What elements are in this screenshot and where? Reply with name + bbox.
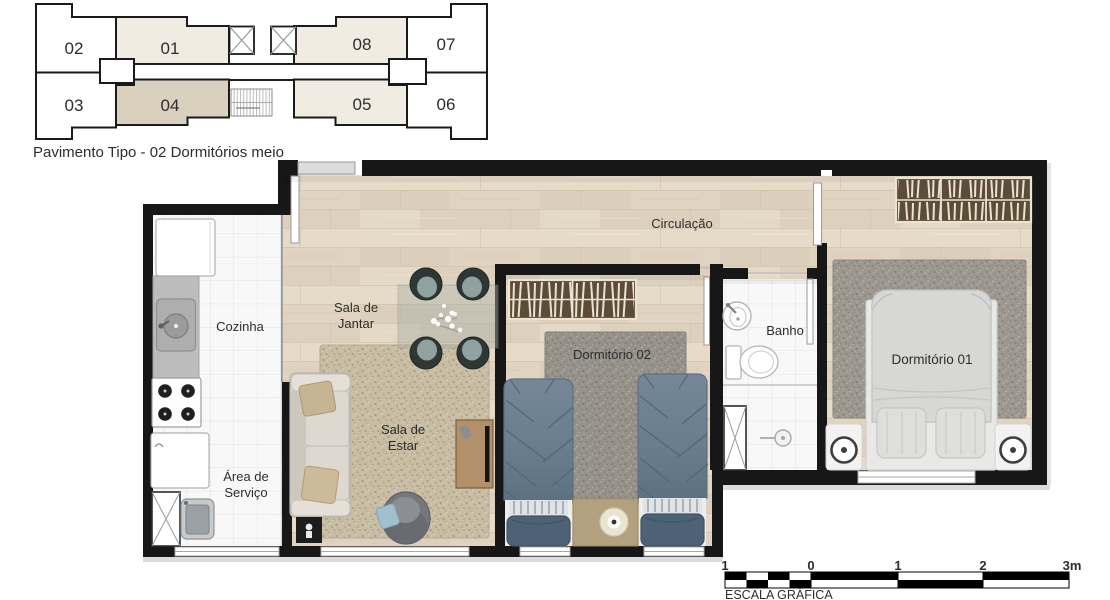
svg-text:04: 04: [161, 96, 180, 115]
svg-text:Dormitório 01: Dormitório 01: [891, 352, 972, 367]
svg-text:ESCALA GRÁFICA: ESCALA GRÁFICA: [725, 587, 833, 600]
svg-text:07: 07: [437, 35, 456, 54]
svg-text:1: 1: [894, 558, 901, 573]
svg-text:Circulação: Circulação: [651, 216, 712, 231]
svg-text:Sala de: Sala de: [334, 300, 378, 315]
svg-text:Dormitório 02: Dormitório 02: [573, 347, 651, 362]
svg-text:Área de: Área de: [223, 469, 269, 484]
svg-text:06: 06: [437, 95, 456, 114]
svg-text:3m: 3m: [1063, 558, 1082, 573]
svg-text:Jantar: Jantar: [338, 316, 375, 331]
svg-text:01: 01: [161, 39, 180, 58]
svg-text:0: 0: [807, 558, 814, 573]
svg-text:Sala de: Sala de: [381, 422, 425, 437]
svg-text:1: 1: [721, 558, 728, 573]
svg-text:Pavimento Tipo - 02 Dormitório: Pavimento Tipo - 02 Dormitórios meio: [33, 144, 284, 161]
svg-text:2: 2: [979, 558, 986, 573]
svg-text:Estar: Estar: [388, 438, 419, 453]
svg-text:Banho: Banho: [766, 323, 804, 338]
svg-text:02: 02: [65, 39, 84, 58]
svg-text:Cozinha: Cozinha: [216, 319, 264, 334]
svg-text:05: 05: [353, 95, 372, 114]
svg-text:Serviço: Serviço: [224, 485, 267, 500]
svg-text:03: 03: [65, 96, 84, 115]
svg-text:08: 08: [353, 35, 372, 54]
